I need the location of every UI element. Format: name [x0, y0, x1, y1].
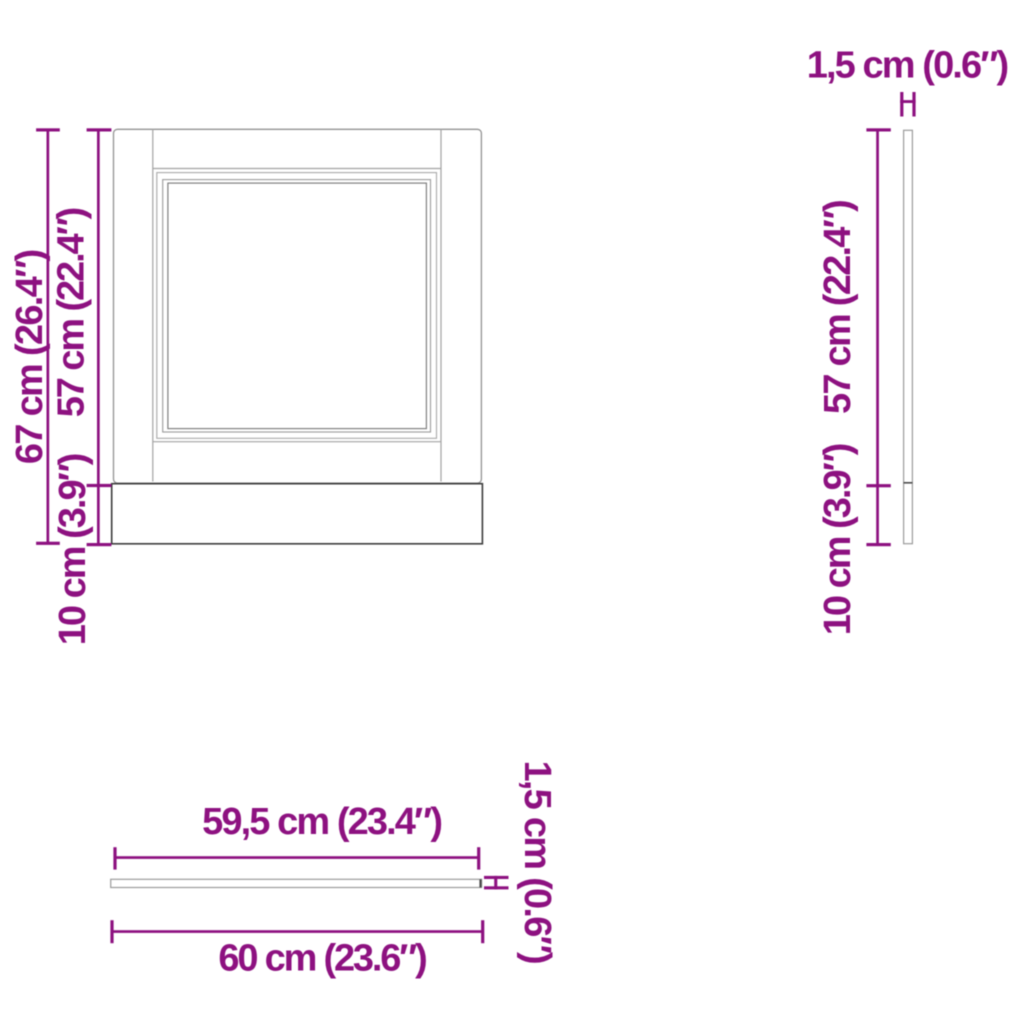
svg-text:57 cm (22.4″): 57 cm (22.4″) — [50, 208, 92, 417]
svg-text:59,5 cm (23.4″): 59,5 cm (23.4″) — [202, 801, 441, 843]
svg-text:10 cm (3.9″): 10 cm (3.9″) — [52, 454, 94, 645]
svg-text:67 cm (26.4″): 67 cm (26.4″) — [9, 250, 51, 464]
svg-text:1,5 cm (0.6″): 1,5 cm (0.6″) — [516, 760, 558, 963]
svg-text:1,5 cm (0.6″): 1,5 cm (0.6″) — [807, 45, 1008, 87]
svg-text:57 cm (22.4″): 57 cm (22.4″) — [817, 201, 859, 414]
svg-text:10 cm (3.9″): 10 cm (3.9″) — [817, 444, 859, 635]
svg-text:60 cm (23.6″): 60 cm (23.6″) — [218, 938, 426, 980]
